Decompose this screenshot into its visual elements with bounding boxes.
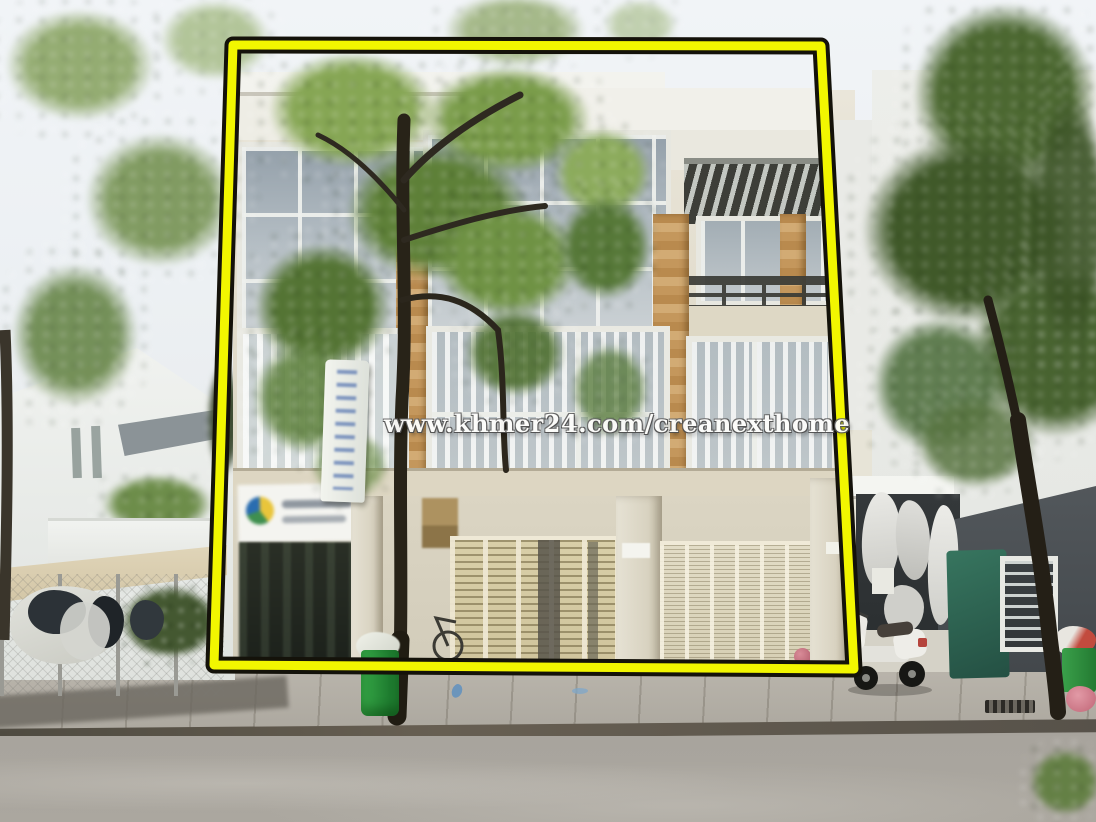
frame-outline [214,45,854,669]
frame-yellow [214,45,854,669]
watermark-text: www.khmer24.com/creanexthome [384,409,718,438]
listing-photo: www.khmer24.com/creanexthome [0,0,1096,822]
